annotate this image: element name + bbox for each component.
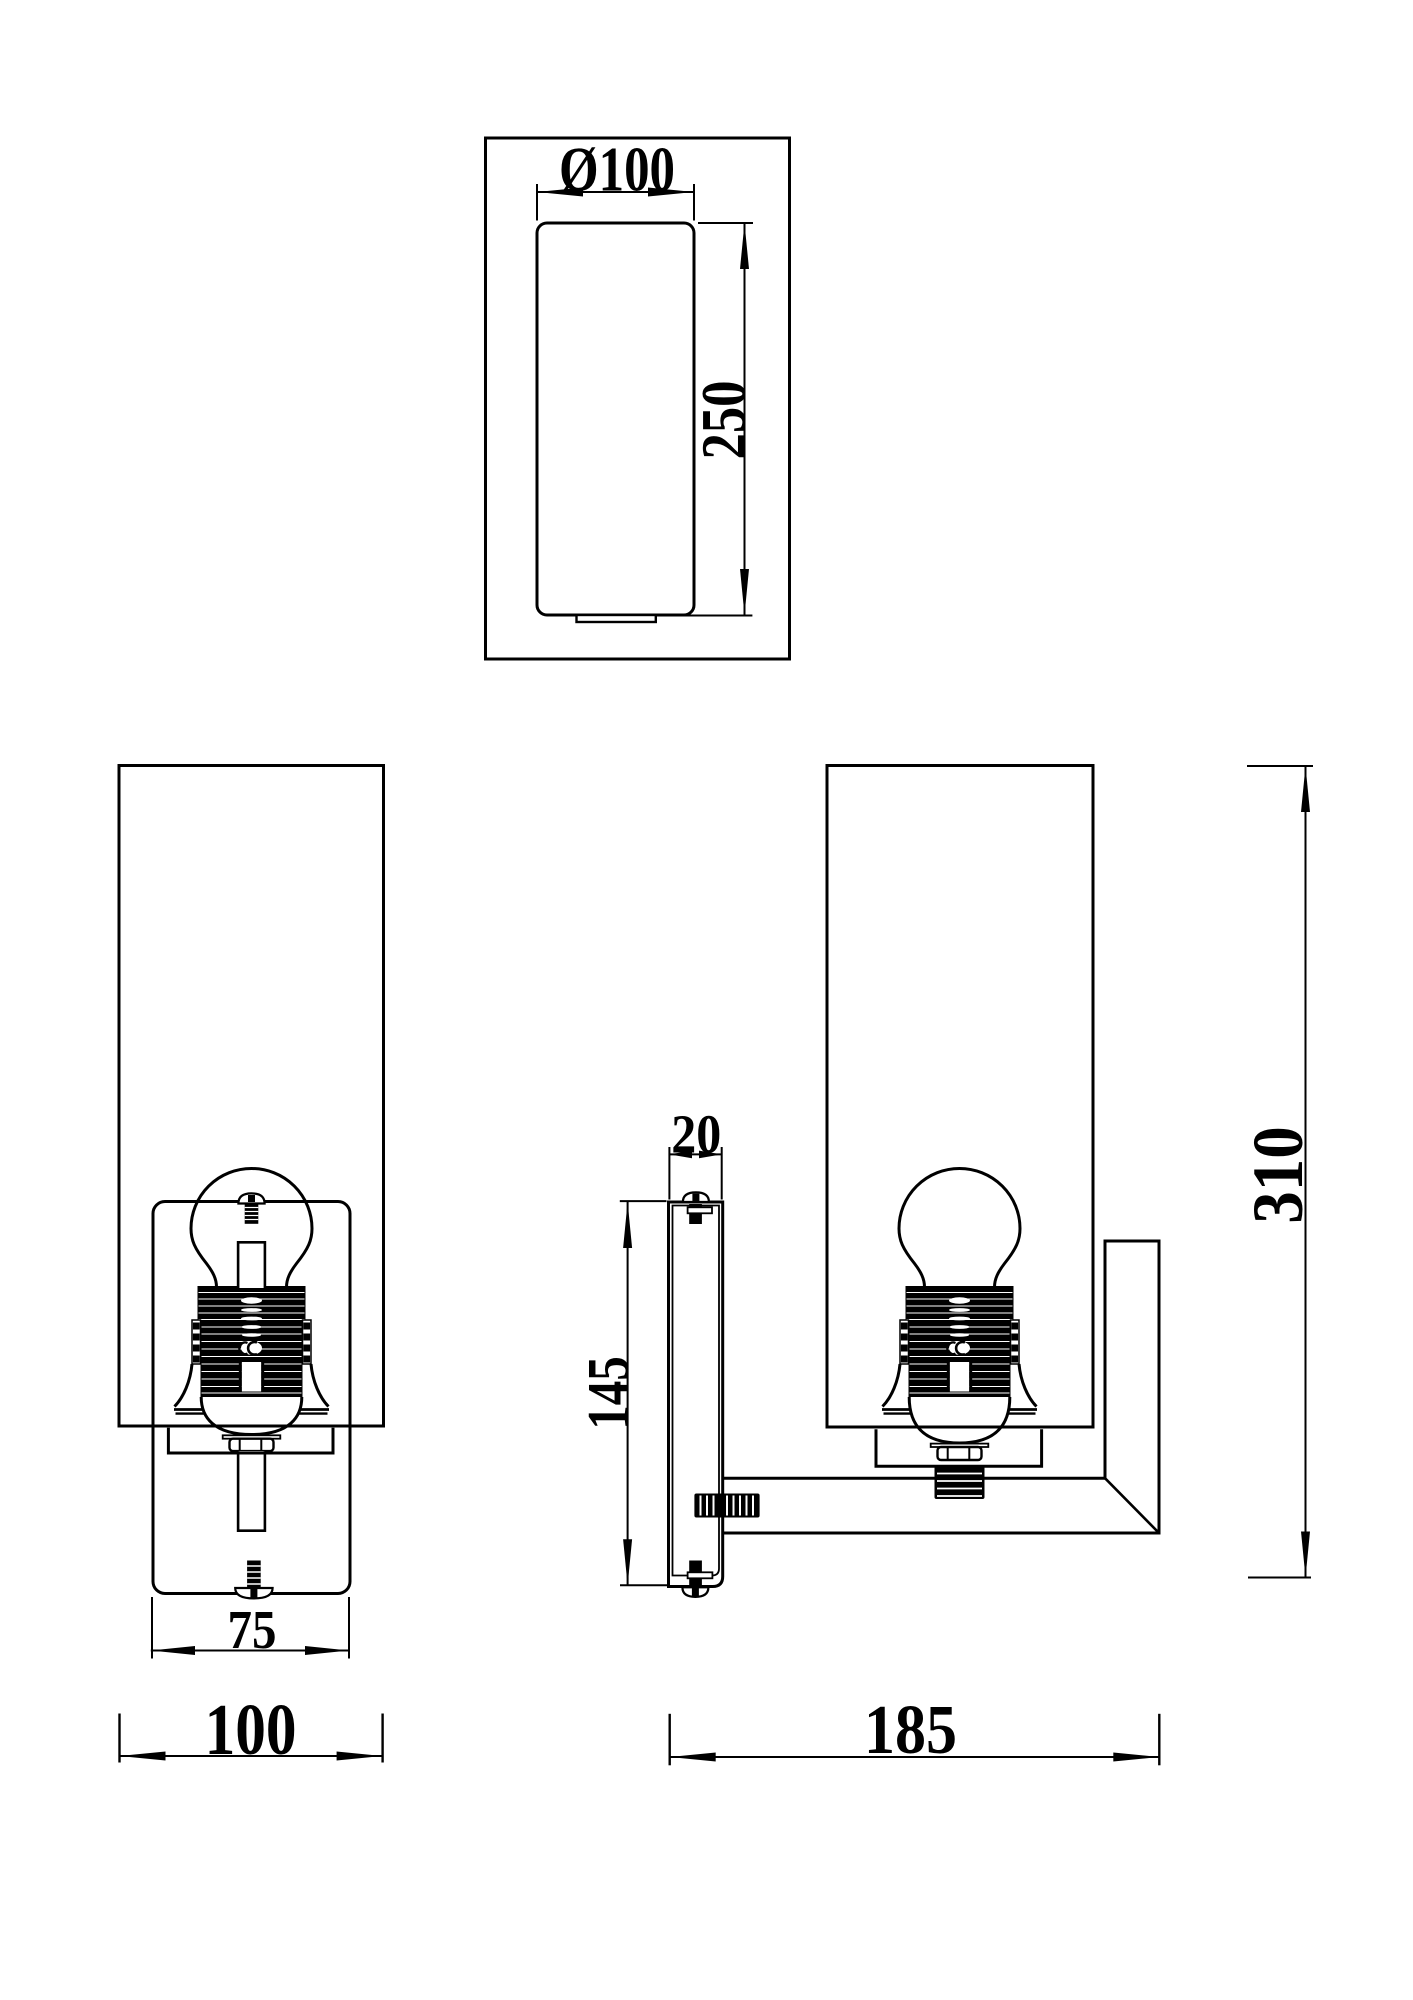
svg-text:185: 185 — [864, 1692, 957, 1769]
svg-text:145: 145 — [575, 1356, 641, 1430]
svg-text:250: 250 — [689, 381, 759, 460]
svg-text:100: 100 — [205, 1689, 297, 1770]
svg-text:75: 75 — [228, 1599, 277, 1660]
svg-text:310: 310 — [1238, 1126, 1318, 1224]
svg-text:20: 20 — [671, 1103, 721, 1164]
svg-text:Ø100: Ø100 — [559, 135, 675, 205]
